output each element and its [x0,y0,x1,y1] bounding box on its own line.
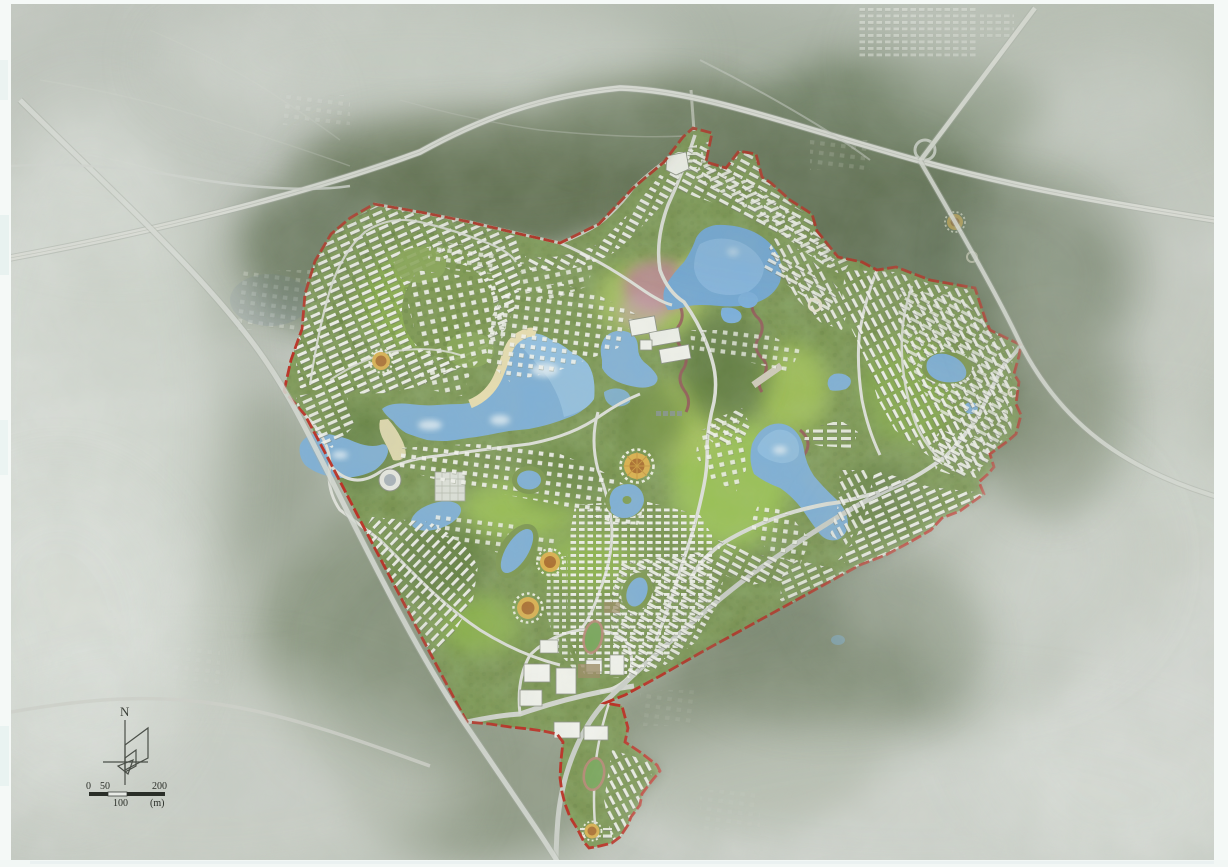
svg-text:(m): (m) [150,798,164,809]
svg-text:50: 50 [100,781,110,792]
svg-text:100: 100 [113,798,128,809]
svg-text:N: N [120,704,130,719]
svg-text:0: 0 [86,781,91,792]
svg-text:200: 200 [152,781,167,792]
